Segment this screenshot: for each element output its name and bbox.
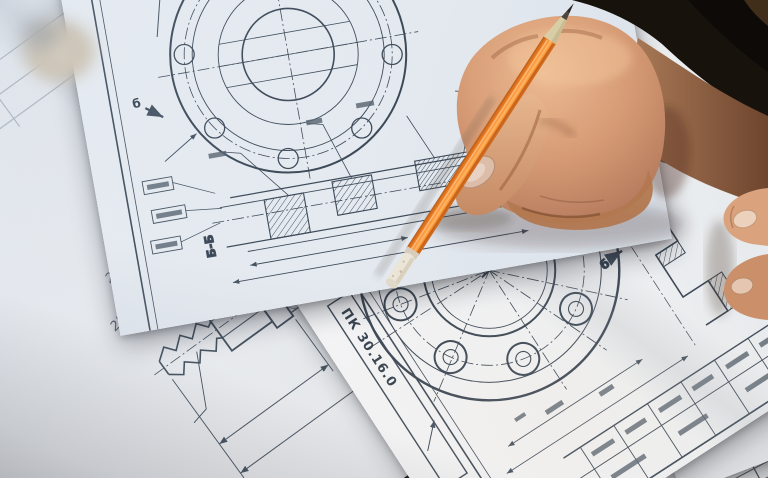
revision-frame-corner — [146, 0, 189, 37]
top-flange-drawing — [125, 0, 440, 203]
section-label: Б-Б — [201, 234, 219, 259]
top-cut-marker: б — [131, 93, 163, 122]
photo-engineering-drawings: 15 25 12 — [0, 0, 768, 478]
svg-text:б: б — [131, 96, 142, 111]
section-view: Б-Б — [184, 81, 538, 287]
svg-text:Б-Б: Б-Б — [669, 137, 689, 162]
section-ellipse-label: Б-Б — [651, 125, 706, 169]
